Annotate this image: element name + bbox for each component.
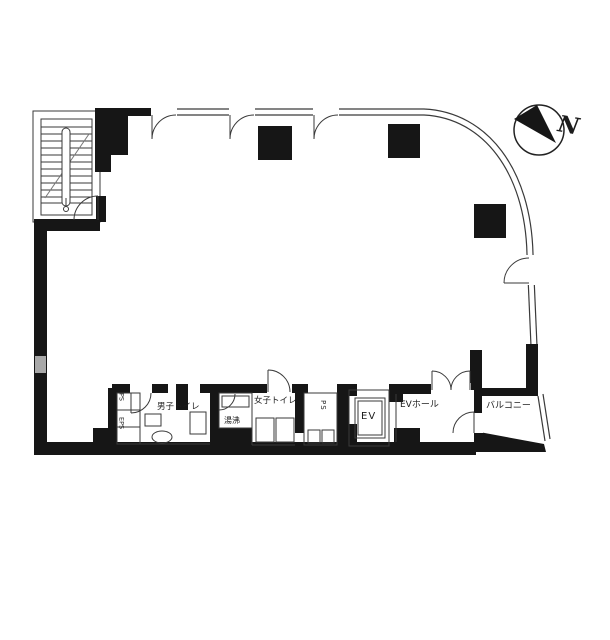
floorplan-canvas: 男子トイレ 湯沸 女子トイレ PS PS EPS EV EVホール バルコニー …: [0, 0, 610, 640]
column: [474, 204, 506, 238]
room-label-kitchenette: 湯沸: [224, 417, 240, 425]
room-label-elevator: EV: [361, 412, 376, 422]
room-label-mens-toilet: 男子トイレ: [157, 403, 200, 412]
room-label-elevator-hall: EVホール: [400, 401, 439, 410]
room-label-balcony: バルコニー: [486, 402, 531, 411]
room-label-eps-left: EPS: [118, 417, 125, 429]
room-label-womens-toilet: 女子トイレ: [254, 397, 297, 406]
stairwell: [33, 111, 100, 222]
compass-north-label: N: [556, 112, 581, 138]
column: [258, 126, 292, 160]
room-label-ps-left: PS: [118, 393, 125, 401]
left-wall-opening: [35, 356, 46, 373]
compass-needle: [514, 105, 556, 143]
floorplan-drawing: [0, 0, 610, 640]
column: [388, 124, 420, 158]
room-label-ps-center: PS: [319, 400, 326, 411]
